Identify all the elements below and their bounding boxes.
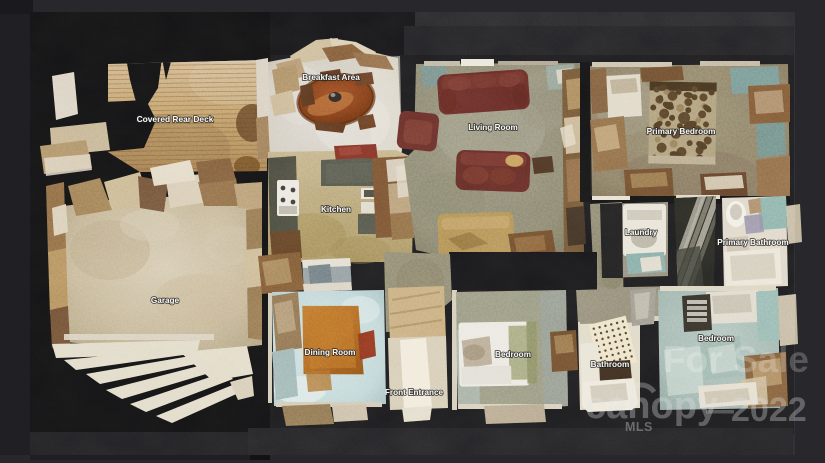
svg-text:For Sale: For Sale <box>663 339 809 380</box>
svg-text:2022: 2022 <box>731 391 807 429</box>
svg-text:MLS: MLS <box>625 420 653 434</box>
